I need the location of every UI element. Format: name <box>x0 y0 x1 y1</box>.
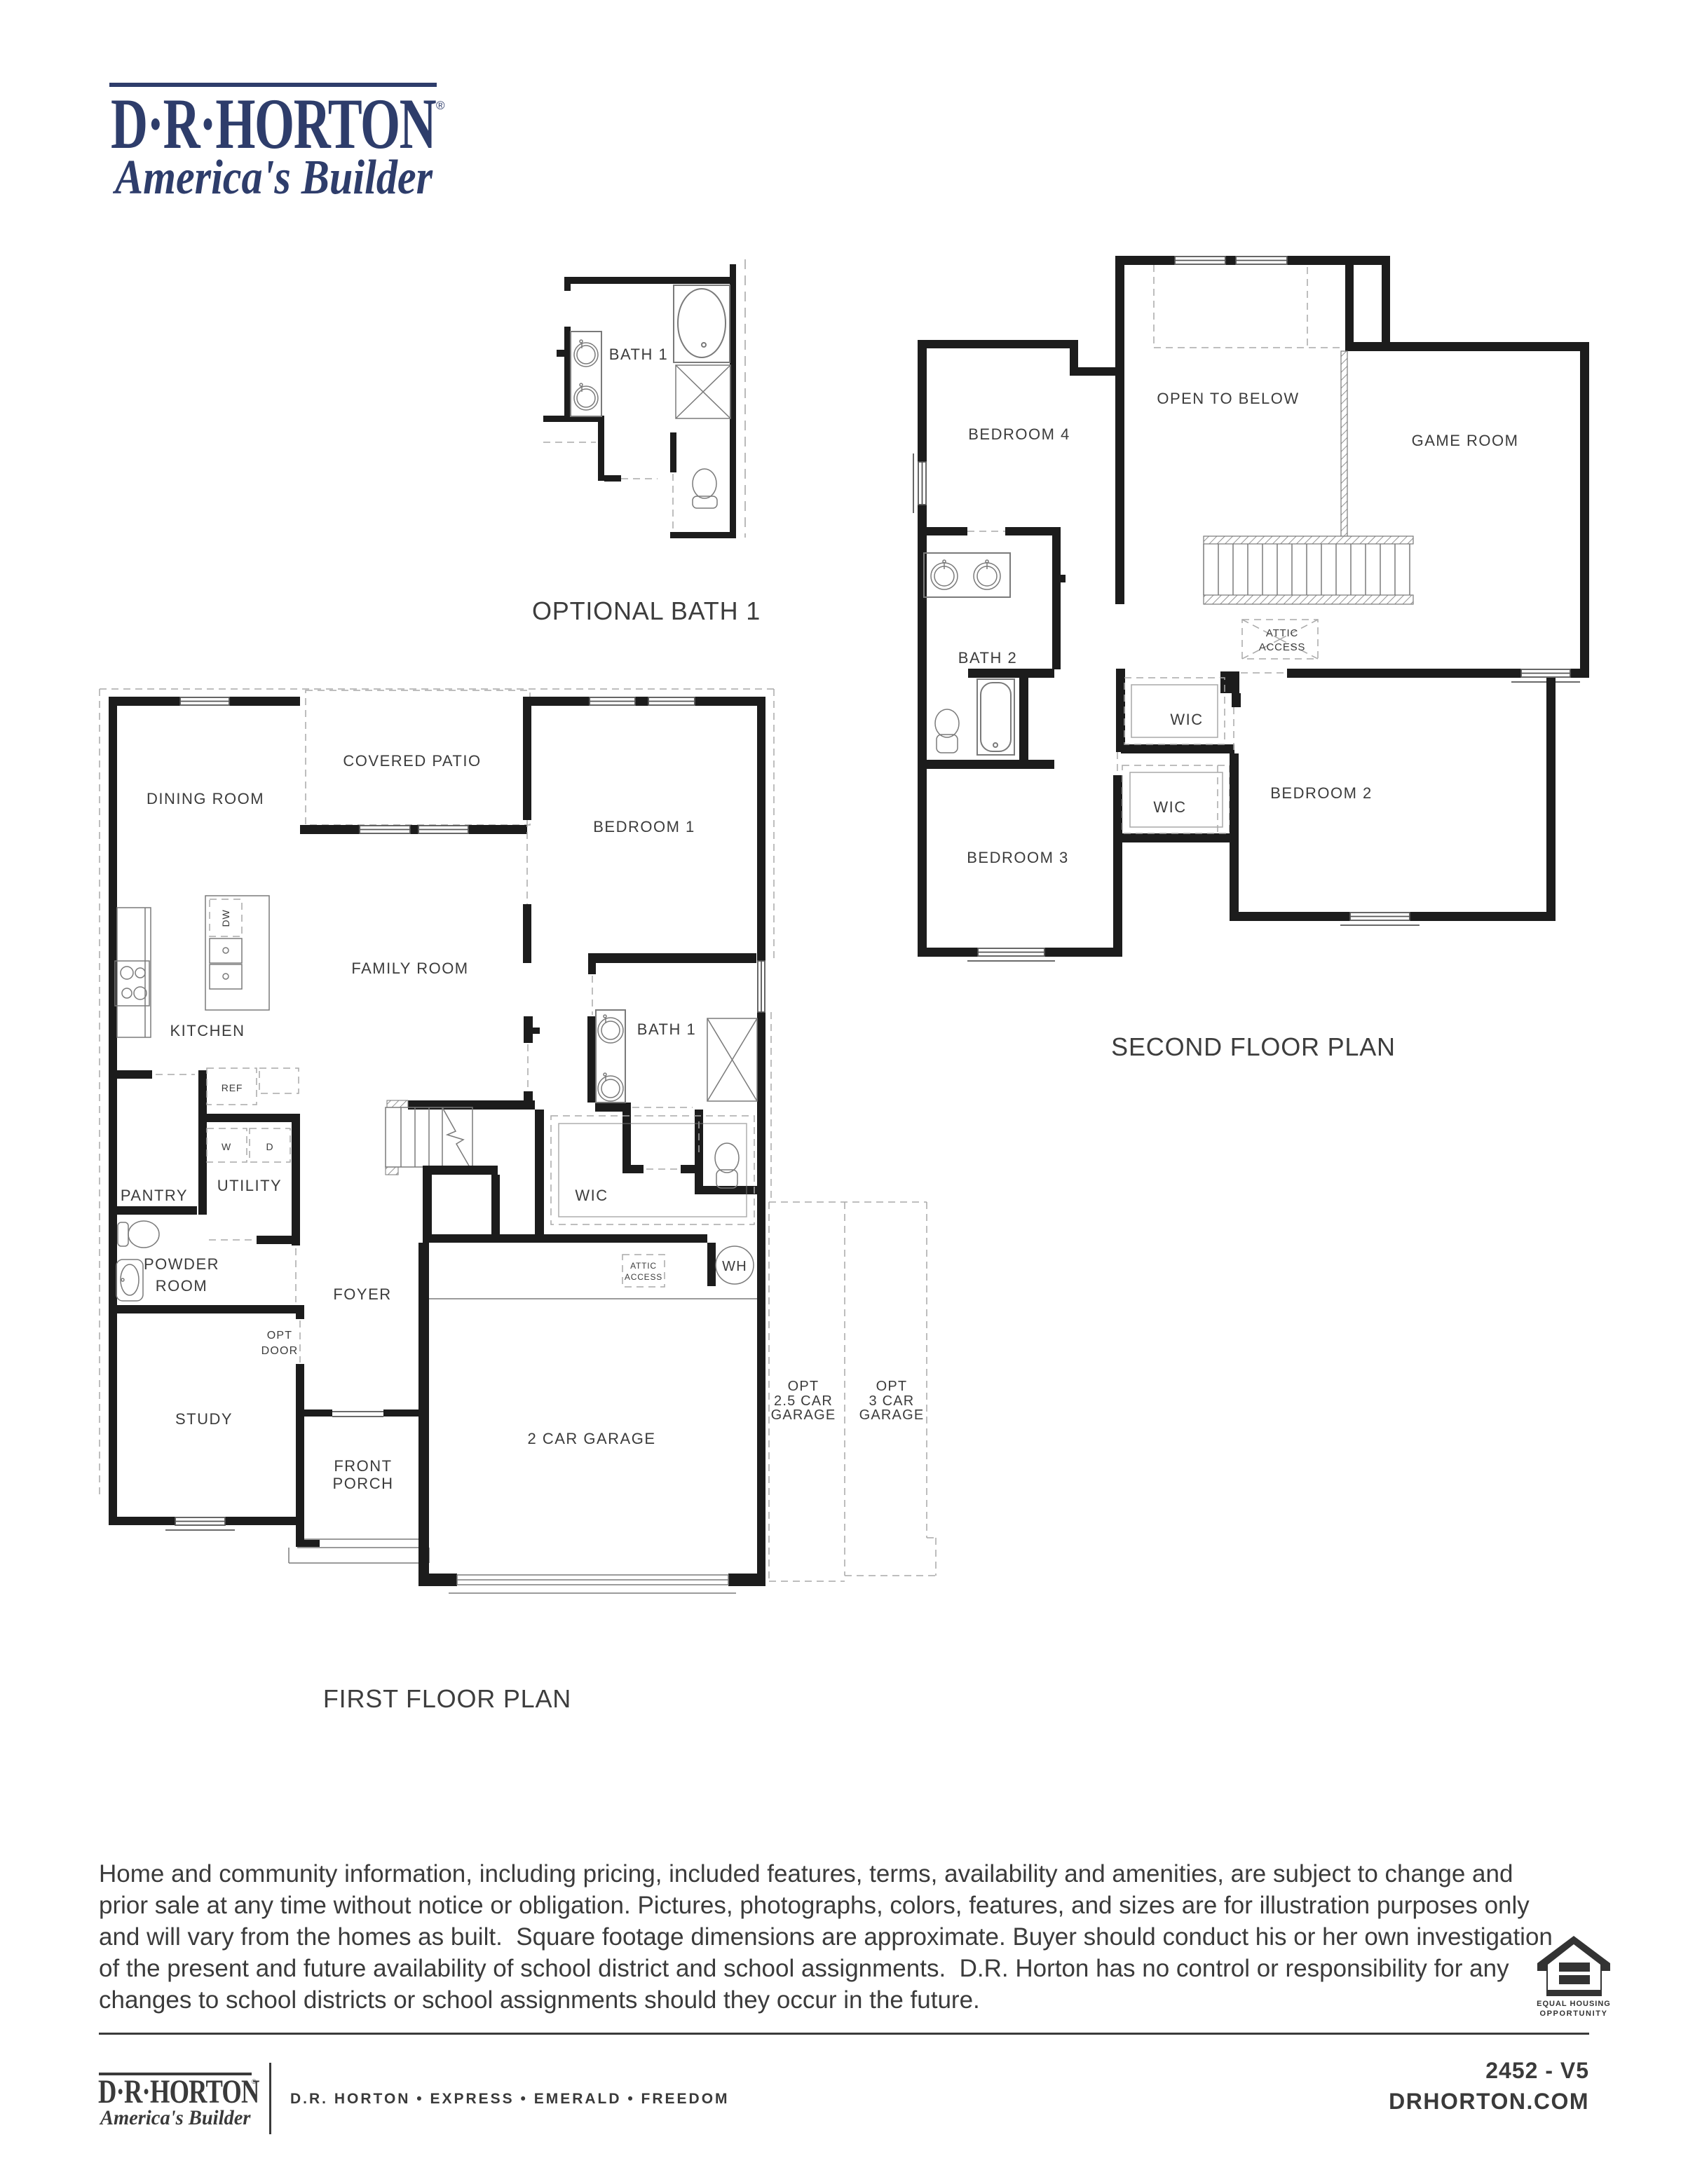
svg-text:®: ® <box>252 2078 257 2085</box>
svg-text:D: D <box>266 1141 274 1152</box>
svg-text:BATH 2: BATH 2 <box>958 649 1017 667</box>
svg-text:OPT: OPT <box>788 1379 819 1394</box>
svg-text:PORCH: PORCH <box>333 1475 394 1492</box>
svg-text:2 CAR GARAGE: 2 CAR GARAGE <box>527 1430 655 1447</box>
svg-text:OPT: OPT <box>267 1330 293 1342</box>
svg-text:DW: DW <box>220 910 231 927</box>
svg-text:ACCESS: ACCESS <box>1259 641 1306 653</box>
svg-text:America's Builder: America's Builder <box>112 151 433 205</box>
svg-text:2.5 CAR: 2.5 CAR <box>774 1393 833 1409</box>
svg-text:WIC: WIC <box>575 1187 608 1204</box>
svg-text:PANTRY: PANTRY <box>121 1187 188 1204</box>
svg-text:3 CAR: 3 CAR <box>869 1393 915 1409</box>
svg-text:FIRST FLOOR PLAN: FIRST FLOOR PLAN <box>323 1684 571 1713</box>
svg-text:DINING ROOM: DINING ROOM <box>147 790 264 807</box>
svg-text:GAME ROOM: GAME ROOM <box>1412 432 1519 449</box>
svg-text:BEDROOM 4: BEDROOM 4 <box>968 425 1070 443</box>
svg-text:ATTIC: ATTIC <box>630 1261 657 1271</box>
svg-text:REF: REF <box>222 1082 243 1093</box>
svg-text:WIC: WIC <box>1153 798 1186 816</box>
svg-text:DOOR: DOOR <box>261 1345 299 1357</box>
svg-text:FAMILY ROOM: FAMILY ROOM <box>351 960 468 977</box>
svg-text:W: W <box>222 1141 231 1152</box>
svg-text:BEDROOM 2: BEDROOM 2 <box>1270 784 1373 802</box>
svg-text:OPTIONAL BATH 1: OPTIONAL BATH 1 <box>532 596 761 625</box>
svg-text:D·R·HORTON: D·R·HORTON <box>98 2073 260 2110</box>
svg-text:BEDROOM 1: BEDROOM 1 <box>593 818 695 835</box>
svg-text:America's Builder: America's Builder <box>99 2106 251 2129</box>
svg-text:KITCHEN: KITCHEN <box>170 1022 245 1039</box>
svg-text:FRONT: FRONT <box>334 1457 392 1475</box>
svg-text:WH: WH <box>722 1259 747 1274</box>
svg-text:OPEN TO BELOW: OPEN TO BELOW <box>1157 390 1299 407</box>
svg-text:UTILITY: UTILITY <box>217 1177 282 1194</box>
svg-text:ATTIC: ATTIC <box>1266 627 1298 639</box>
svg-text:BATH 1: BATH 1 <box>637 1021 696 1038</box>
svg-text:GARAGE: GARAGE <box>771 1407 836 1423</box>
svg-text:POWDER: POWDER <box>144 1255 219 1273</box>
svg-text:BEDROOM 3: BEDROOM 3 <box>967 849 1069 866</box>
svg-text:FOYER: FOYER <box>333 1285 391 1303</box>
svg-text:GARAGE: GARAGE <box>859 1407 925 1423</box>
svg-text:COVERED PATIO: COVERED PATIO <box>343 752 481 770</box>
svg-text:STUDY: STUDY <box>175 1410 233 1428</box>
svg-text:ROOM: ROOM <box>156 1277 207 1295</box>
svg-text:WIC: WIC <box>1170 711 1203 728</box>
svg-text:SECOND FLOOR PLAN: SECOND FLOOR PLAN <box>1111 1032 1396 1061</box>
svg-text:®: ® <box>436 99 445 112</box>
svg-text:ACCESS: ACCESS <box>625 1272 662 1282</box>
svg-text:BATH 1: BATH 1 <box>609 346 668 363</box>
svg-text:OPT: OPT <box>876 1379 908 1394</box>
